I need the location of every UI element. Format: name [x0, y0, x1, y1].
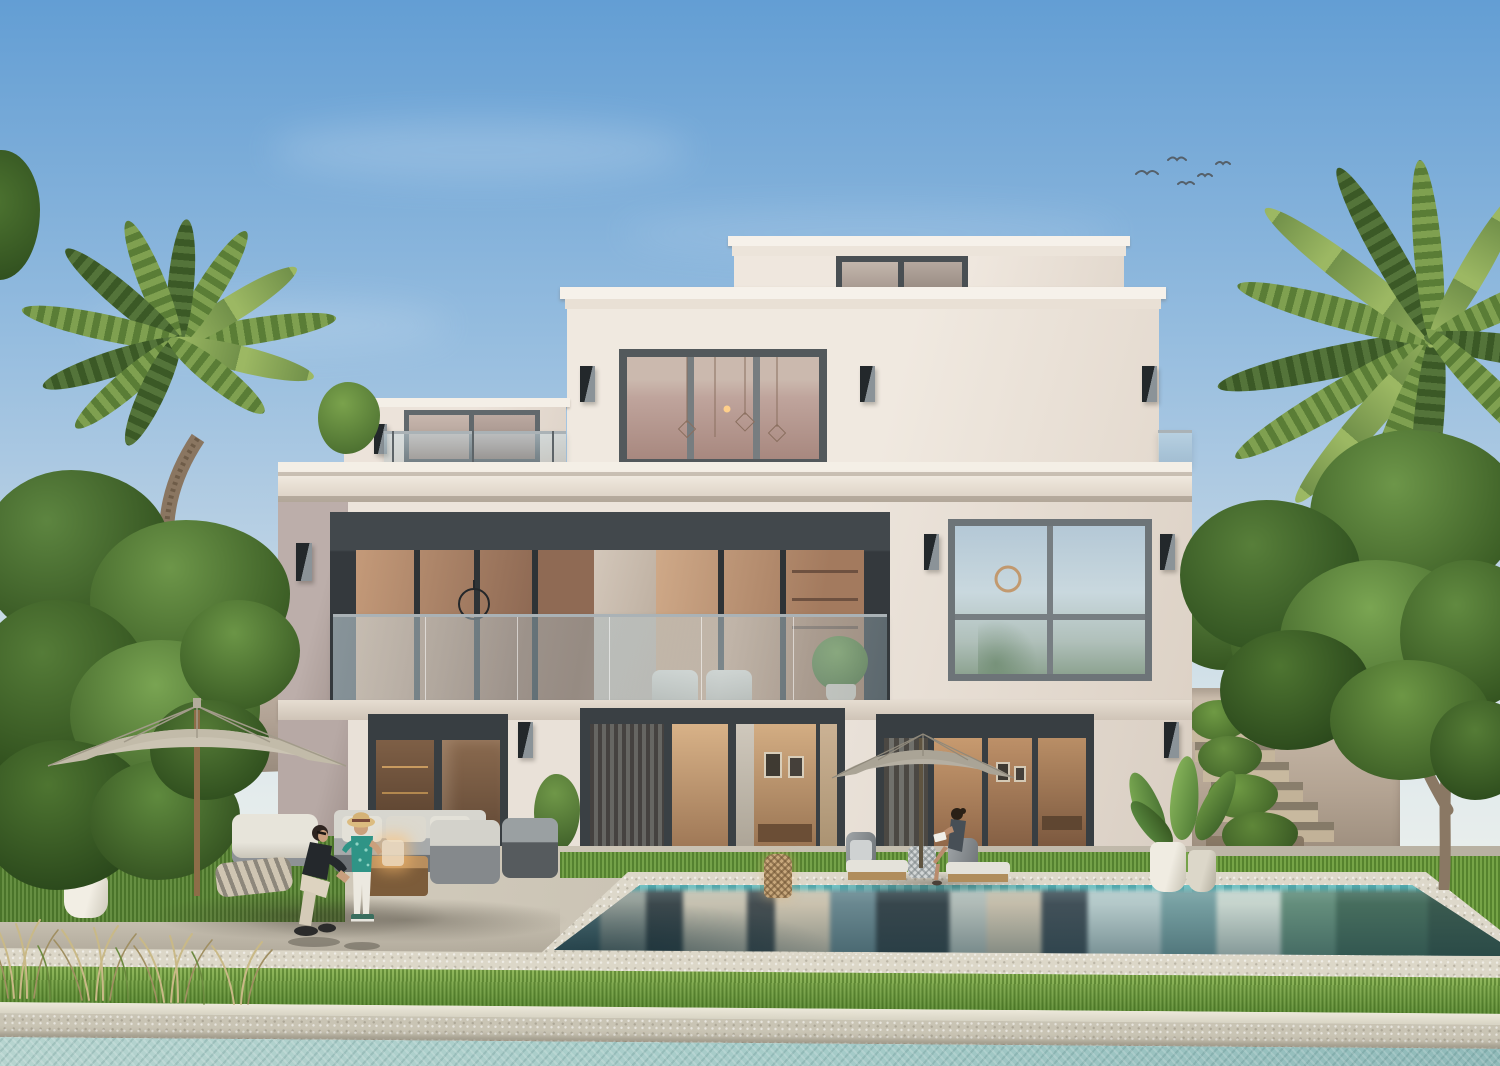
birds-icon — [1130, 148, 1240, 208]
railing-post — [552, 431, 554, 465]
terrace-slab — [278, 462, 1192, 502]
terrace-glass-railing — [1158, 430, 1192, 465]
balcony-glass-balustrade — [333, 614, 887, 705]
third-floor-cornice-step — [565, 299, 1161, 309]
plant-pot-gray — [1188, 850, 1216, 892]
outdoor-armchair-dark — [502, 818, 558, 878]
patio-umbrella-right — [830, 728, 1016, 870]
pendant-decor — [627, 357, 819, 459]
wall-sconce-icon — [1164, 722, 1179, 758]
railing-post — [392, 431, 394, 465]
plant-pot-white — [1150, 842, 1186, 892]
person-woman — [926, 806, 978, 890]
wall-sconce-icon — [518, 722, 533, 758]
cloud-wisp — [270, 120, 690, 180]
wall-sconce-icon — [1160, 534, 1175, 570]
wall-sconce-icon — [1142, 366, 1157, 402]
wall-sconce-icon — [296, 543, 312, 581]
person-child — [338, 810, 390, 952]
wicker-floor-lantern — [764, 854, 792, 898]
second-floor-right-window — [948, 519, 1152, 681]
wall-sconce-icon — [924, 534, 939, 570]
outdoor-armchair — [430, 820, 500, 884]
roof-box-cornice — [728, 236, 1130, 246]
ground-door-middle — [580, 708, 845, 866]
scene-canvas — [0, 0, 1500, 1066]
dry-ornamental-grasses — [0, 868, 294, 1008]
wall-sconce-icon — [580, 366, 595, 402]
railing-post — [472, 431, 474, 465]
third-floor-window — [619, 349, 827, 465]
wall-sconce-icon — [860, 366, 875, 402]
third-floor-cornice — [560, 287, 1166, 299]
roof-box-cornice-step — [732, 246, 1126, 256]
